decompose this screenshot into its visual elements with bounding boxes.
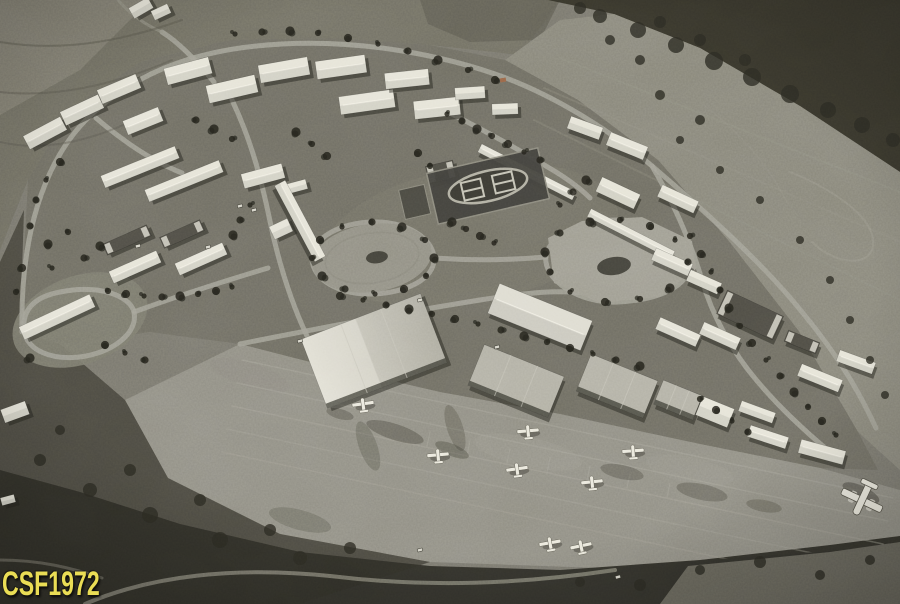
watermark-text: CSF1972 — [2, 567, 100, 601]
aerial-photo-scene — [0, 0, 900, 604]
vignette-overlay — [0, 0, 900, 604]
aerial-photo: CSF1972 — [0, 0, 900, 604]
